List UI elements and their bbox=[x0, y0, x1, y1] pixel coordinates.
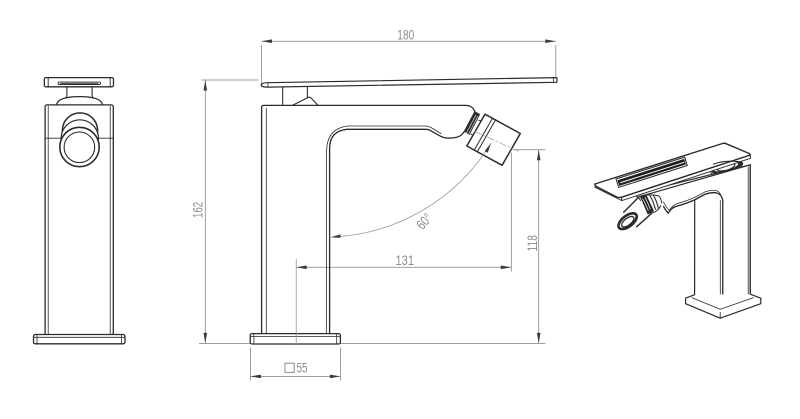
svg-text:118: 118 bbox=[524, 235, 540, 252]
svg-text:55: 55 bbox=[297, 360, 308, 376]
svg-text:180: 180 bbox=[397, 27, 414, 43]
svg-text:131: 131 bbox=[396, 252, 415, 268]
svg-text:162: 162 bbox=[190, 202, 206, 218]
